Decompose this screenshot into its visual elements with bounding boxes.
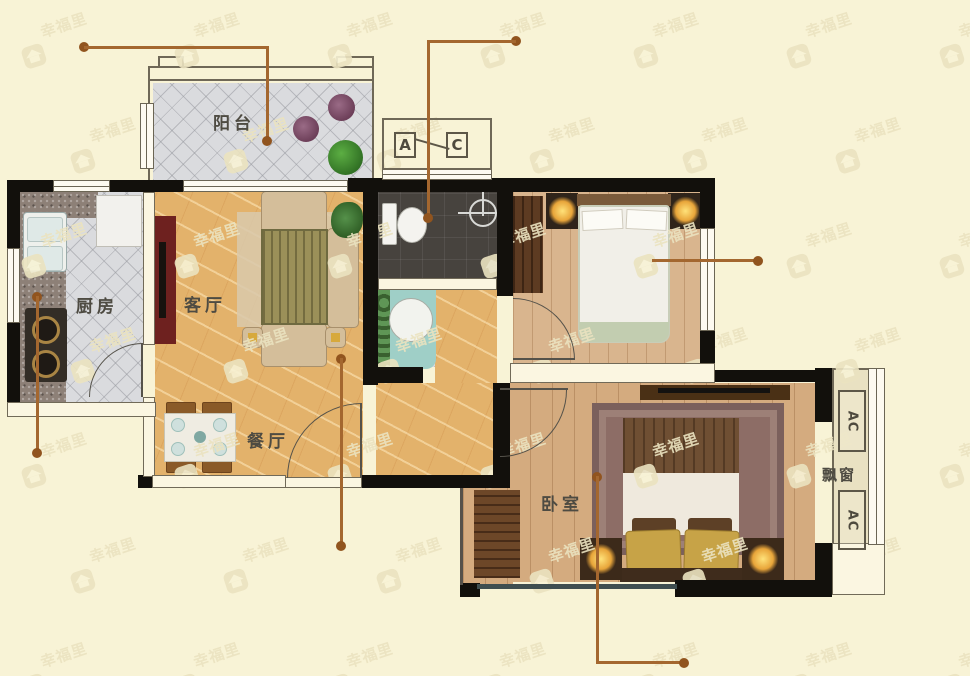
watermark-house-logo-icon [528, 147, 556, 175]
watermark-unit: 幸福里 [473, 626, 591, 676]
watermark-brand-text: 幸福里 [38, 428, 90, 463]
bedroom-bottom-thin-wall [477, 584, 677, 589]
watermark-brand-text: 幸福里 [344, 8, 396, 43]
wall [497, 192, 513, 296]
bay-ac-text-top: AC [844, 410, 859, 432]
shower-symbol-vline [482, 190, 484, 216]
bed-top-pillow-1 [582, 209, 624, 231]
watermark-house-logo-icon [681, 147, 709, 175]
watermark-brand-text: 幸福里 [497, 638, 549, 673]
leader-balcony-hline [84, 46, 268, 49]
watermark-unit: 幸福里 [675, 101, 793, 177]
tv-bedroom [658, 388, 770, 393]
wall-light [510, 363, 715, 383]
watermark-unit: 幸福里 [0, 101, 28, 177]
watermark-unit: 幸福里 [522, 101, 640, 177]
watermark-house-logo-icon [632, 42, 660, 70]
leader-living-dot-end [336, 541, 346, 551]
watermark-unit: 幸福里 [828, 311, 946, 387]
watermark-brand-text: 幸福里 [38, 638, 90, 673]
bay-window-sill [832, 543, 885, 595]
watermark-brand-text: 幸福里 [852, 113, 904, 148]
entry-door-leaf [360, 403, 362, 478]
watermark-house-logo-icon [785, 42, 813, 70]
ac-letter-c: C [451, 136, 462, 154]
watermark-brand-text: 幸福里 [191, 638, 243, 673]
watermark-brand-text: 幸福里 [344, 638, 396, 673]
watermark-unit: 幸福里 [320, 0, 438, 72]
watermark-brand-text: 幸福里 [956, 428, 970, 463]
watermark-brand-text: 幸福里 [497, 8, 549, 43]
ac-letter-c-box: C [446, 132, 468, 158]
watermark-house-logo-icon [938, 42, 966, 70]
watermark-house-logo-icon [20, 42, 48, 70]
balcony-plant-2 [328, 94, 355, 121]
watermark-brand-text: 幸福里 [699, 113, 751, 148]
balcony-railing-inner-line [148, 79, 374, 81]
bedroom-top-door-leaf [513, 358, 575, 360]
leader-living-vline [340, 358, 343, 544]
leader-kitchen-vline [36, 296, 39, 451]
place-setting-2 [213, 418, 227, 432]
watermark-house-logo-icon [938, 252, 966, 280]
place-setting-1 [171, 418, 185, 432]
watermark-brand-text: 幸福里 [956, 8, 970, 43]
watermark-house-logo-icon [834, 147, 862, 175]
watermark-house-logo-icon [20, 672, 48, 676]
stool-right-cushion [331, 333, 340, 342]
watermark-unit: 幸福里 [167, 626, 285, 676]
wall-light [7, 402, 156, 417]
balcony-left-window [140, 103, 154, 169]
watermark-unit: 幸福里 [320, 626, 438, 676]
kitchen-top-window [53, 180, 110, 192]
wall-light [143, 192, 155, 345]
tv [159, 242, 166, 318]
watermark-house-logo-icon [479, 672, 507, 676]
leader-bathroom-vline [427, 40, 430, 218]
wall-light [152, 475, 286, 488]
watermark-house-logo-icon [20, 462, 48, 490]
watermark-unit: 幸福里 [14, 0, 132, 72]
kitchen-door-leaf [141, 343, 143, 397]
watermark-house-logo-icon [69, 567, 97, 595]
leader-bathroom-dot-end [423, 213, 433, 223]
wall [363, 192, 378, 385]
wall [362, 475, 493, 488]
wall [348, 178, 715, 192]
watermark-house-logo-icon [938, 672, 966, 676]
watermark-house-logo-icon [785, 672, 813, 676]
wall [675, 580, 832, 597]
floor-plan: A C AC AC 阳台 厨房 客厅 餐厅 卧室 飘窗 幸福里幸福里幸福里幸福里… [0, 0, 970, 676]
leader-bedroom-top-dot [753, 256, 763, 266]
wall [815, 368, 832, 422]
watermark-brand-text: 幸福里 [87, 533, 139, 568]
bay-ac-text-bottom: AC [844, 509, 859, 531]
label-bedroom: 卧室 [541, 490, 583, 515]
bay-ac-symbol-top: AC [838, 390, 866, 452]
watermark-unit: 幸福里 [473, 0, 591, 72]
watermark-brand-text: 幸福里 [650, 8, 702, 43]
wall [7, 180, 55, 192]
ac-letter-a-box: A [394, 132, 416, 158]
watermark-unit: 幸福里 [779, 626, 897, 676]
entry-threshold [285, 477, 362, 488]
balcony-sliding-door [183, 180, 348, 192]
watermark-house-logo-icon [69, 147, 97, 175]
watermark-house-logo-icon [479, 42, 507, 70]
watermark-brand-text: 幸福里 [956, 218, 970, 253]
watermark-unit: 幸福里 [626, 0, 744, 72]
label-dining-room: 餐厅 [247, 427, 289, 452]
watermark-brand-text: 幸福里 [38, 8, 90, 43]
label-bay-window: 飘窗 [822, 464, 856, 485]
leader-balcony-dot-end [262, 136, 272, 146]
watermark-unit: 幸福里 [779, 0, 897, 72]
watermark-unit: 幸福里 [63, 521, 181, 597]
watermark-unit: 幸福里 [932, 206, 970, 282]
watermark-unit: 幸福里 [932, 0, 970, 72]
leader-balcony-vline [266, 46, 269, 141]
watermark-house-logo-icon [222, 567, 250, 595]
watermark-brand-text: 幸福里 [803, 218, 855, 253]
watermark-house-logo-icon [785, 252, 813, 280]
balcony-plant-3 [328, 140, 363, 175]
leader-bedroom-bottom-hline [596, 661, 684, 664]
label-balcony: 阳台 [213, 109, 255, 134]
watermark-brand-text: 幸福里 [803, 8, 855, 43]
bedroom-left-thin-wall [460, 488, 463, 585]
watermark-unit: 幸福里 [626, 626, 744, 676]
watermark-brand-text: 幸福里 [191, 8, 243, 43]
watermark-house-logo-icon [375, 567, 403, 595]
watermark-unit: 幸福里 [14, 626, 132, 676]
watermark-unit: 幸福里 [779, 206, 897, 282]
shower-partition [378, 278, 497, 290]
watermark-brand-text: 幸福里 [546, 113, 598, 148]
leader-bedroom-bottom-dot-end [679, 658, 689, 668]
label-kitchen: 厨房 [76, 292, 118, 317]
watermark-brand-text: 幸福里 [240, 533, 292, 568]
bedroom-bottom-door-leaf [500, 388, 568, 390]
bay-window-glass [868, 368, 885, 545]
watermark-house-logo-icon [173, 672, 201, 676]
label-living-room: 客厅 [184, 291, 226, 316]
watermark-house-logo-icon [326, 672, 354, 676]
watermark-brand-text: 幸福里 [803, 638, 855, 673]
watermark-unit: 幸福里 [932, 626, 970, 676]
leader-bathroom-hline [427, 40, 516, 43]
watermark-brand-text: 幸福里 [393, 533, 445, 568]
watermark-brand-text: 幸福里 [852, 323, 904, 358]
bay-ac-symbol-bottom: AC [838, 490, 866, 550]
kitchen-left-window [7, 248, 20, 323]
bedroom-top-window [700, 228, 715, 331]
leader-kitchen-dot-end [32, 448, 42, 458]
watermark-unit: 幸福里 [932, 416, 970, 492]
ac-letter-a: A [399, 136, 411, 154]
wall [363, 367, 423, 383]
watermark-brand-text: 幸福里 [650, 638, 702, 673]
watermark-house-logo-icon [938, 462, 966, 490]
watermark-brand-text: 幸福里 [956, 638, 970, 673]
watermark-unit: 幸福里 [216, 521, 334, 597]
watermark-house-logo-icon [528, 567, 556, 595]
wall [142, 180, 185, 192]
watermark-brand-text: 幸福里 [87, 113, 139, 148]
leader-bedroom-top-hline [652, 259, 758, 262]
watermark-house-logo-icon [632, 672, 660, 676]
wall [700, 192, 715, 230]
watermark-unit: 幸福里 [0, 521, 28, 597]
watermark-unit: 幸福里 [828, 101, 946, 177]
leader-bedroom-bottom-vline [596, 476, 599, 664]
